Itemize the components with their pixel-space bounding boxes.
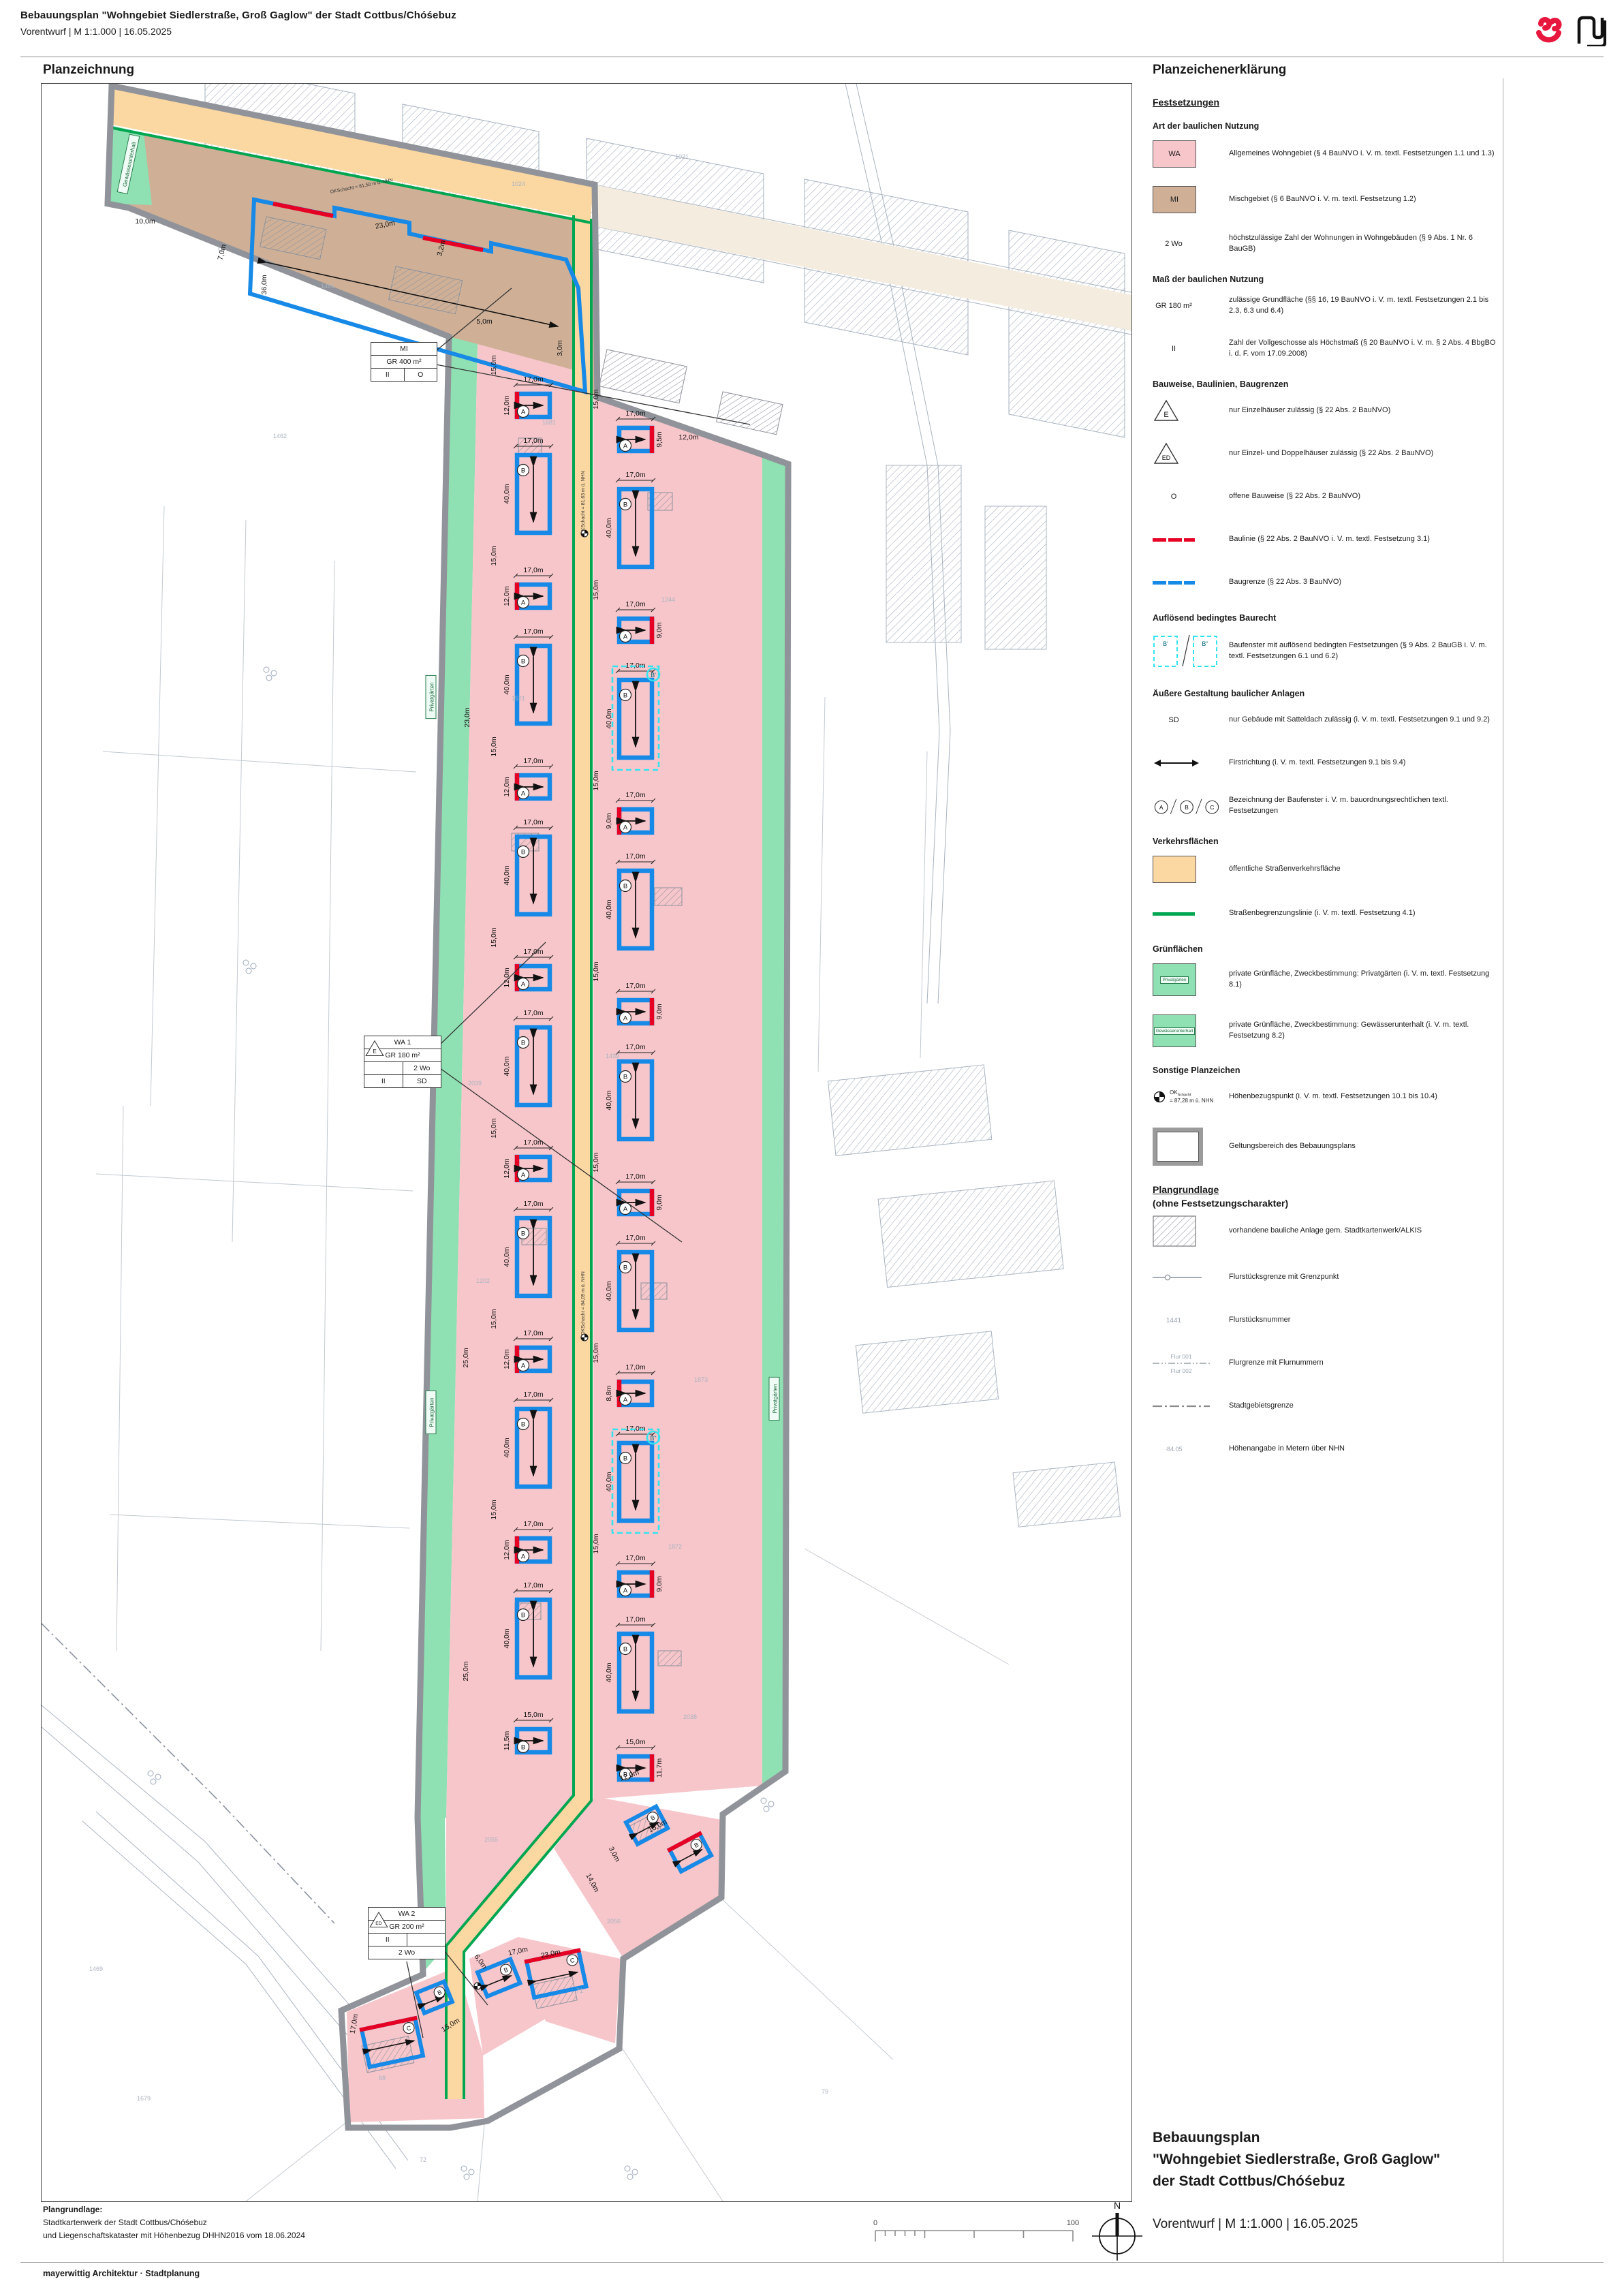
- legend-item-label: zulässige Grundfläche (§§ 16, 19 BauNVO …: [1221, 295, 1497, 317]
- svg-text:17,0m: 17,0m: [523, 1009, 543, 1017]
- svg-text:17,0m: 17,0m: [625, 982, 645, 990]
- svg-text:A: A: [521, 981, 526, 989]
- legend-item: E nur Einzelhäuser zulässig (§ 22 Abs. 2…: [1153, 399, 1497, 423]
- svg-text:15,0m: 15,0m: [490, 355, 498, 375]
- legend-item-label: öffentliche Straßenverkehrsfläche: [1221, 864, 1497, 875]
- legend-item-label: Höhenangabe in Metern über NHN: [1221, 1444, 1497, 1455]
- svg-text:1461: 1461: [321, 283, 334, 290]
- legend-item: Flurstücksgrenze mit Grenzpunkt: [1153, 1265, 1497, 1290]
- legend-item-label: Flurstücksnummer: [1221, 1315, 1497, 1326]
- svg-text:B: B: [623, 692, 627, 700]
- title-block-line2: "Wohngebiet Siedlerstraße, Groß Gaglow": [1153, 2149, 1480, 2171]
- legend-symbol: WA: [1153, 140, 1221, 168]
- svg-text:2039: 2039: [468, 1080, 482, 1087]
- legend-item-label: Geltungsbereich des Bebauungsplans: [1221, 1141, 1497, 1152]
- legend-item: B' B" Baufenster mit auflösend bedingten…: [1153, 632, 1497, 670]
- legend-item-label: Bezeichnung der Baufenster i. V. m. bauo…: [1221, 795, 1497, 817]
- svg-text:C: C: [1210, 804, 1214, 811]
- plan-drawing-svg: A 17,0m12,0m15,0m B 17,0m40,0m A 17,0m12…: [42, 84, 1131, 2201]
- title-block: Bebauungsplan "Wohngebiet Siedlerstraße,…: [1153, 2127, 1480, 2232]
- svg-text:B: B: [521, 1040, 525, 1047]
- footer-note-1: Stadtkartenwerk der Stadt Cottbus/Chóśeb…: [43, 2216, 305, 2229]
- svg-text:15,0m: 15,0m: [625, 1738, 645, 1746]
- title-block-status: Vorentwurf | M 1:1.000 | 16.05.2025: [1153, 2217, 1480, 2232]
- legend-symbol: [1153, 1128, 1221, 1166]
- svg-text:A: A: [623, 443, 628, 450]
- label-box-cell: ED: [407, 1934, 446, 1946]
- legend-hoehenbezugspunkt: OKSchacht= 87,28 m ü. NHN: [1153, 1089, 1213, 1104]
- svg-text:A: A: [623, 634, 628, 641]
- svg-text:8,8m: 8,8m: [605, 1385, 613, 1401]
- svg-text:40,0m: 40,0m: [503, 1438, 511, 1457]
- legend-item: MI Mischgebiet (§ 6 BauNVO i. V. m. text…: [1153, 186, 1497, 213]
- svg-text:B: B: [521, 1612, 525, 1619]
- sheet-header: Bebauungsplan "Wohngebiet Siedlerstraße,…: [20, 10, 456, 37]
- svg-text:17,0m: 17,0m: [523, 627, 543, 636]
- legend-item-label: nur Gebäude mit Satteldach zulässig (i. …: [1221, 715, 1497, 726]
- hoehenbezugspunkt-icon: [474, 1983, 481, 1989]
- legend-subheading: Sonstige Planzeichen: [1153, 1066, 1497, 1075]
- legend-group-subheading: (ohne Festsetzungscharakter): [1153, 1198, 1497, 1209]
- label-box-cell: GR 400 m²: [371, 356, 437, 368]
- svg-text:1872: 1872: [668, 1543, 682, 1550]
- drawing-section-title: Planzeichnung: [43, 63, 134, 78]
- legend-item: Stadtgebietsgrenze: [1153, 1394, 1497, 1418]
- legend-item-label: Baulinie (§ 22 Abs. 2 BauNVO i. V. m. te…: [1221, 534, 1497, 545]
- legend-subheading: Bauweise, Baulinien, Baugrenzen: [1153, 379, 1497, 389]
- legend-item: vorhandene bauliche Anlage gem. Stadtkar…: [1153, 1215, 1497, 1247]
- legend-bestand-hatch: [1153, 1215, 1196, 1247]
- sheet-title: Bebauungsplan "Wohngebiet Siedlerstraße,…: [20, 10, 456, 21]
- legend-symbol: Flur 001 Flur 002: [1153, 1352, 1221, 1375]
- svg-text:17,0m: 17,0m: [523, 437, 543, 445]
- legend-symbol: OKSchacht= 87,28 m ü. NHN: [1153, 1089, 1221, 1104]
- svg-text:9,5m: 9,5m: [655, 431, 663, 448]
- title-block-line1: Bebauungsplan: [1153, 2127, 1480, 2149]
- svg-text:A: A: [623, 1397, 628, 1404]
- label-box-cell: II: [364, 1075, 403, 1087]
- svg-text:40,0m: 40,0m: [503, 1056, 511, 1076]
- legend-section-title: Planzeichenerklärung: [1153, 63, 1286, 78]
- header-rule: [20, 57, 1604, 57]
- svg-text:17,0m: 17,0m: [625, 1554, 645, 1562]
- svg-text:1462: 1462: [273, 433, 287, 439]
- svg-text:17,0m: 17,0m: [625, 1363, 645, 1371]
- svg-text:B: B: [623, 1265, 627, 1272]
- svg-text:Flur 001: Flur 001: [1170, 1353, 1191, 1360]
- legend-item: Straßenbegrenzungslinie (i. V. m. textl.…: [1153, 901, 1497, 926]
- svg-text:15,0m: 15,0m: [592, 771, 600, 790]
- svg-text:B': B': [1163, 640, 1168, 647]
- svg-text:10,0m: 10,0m: [135, 217, 155, 226]
- legend-symbol: MI: [1153, 186, 1221, 213]
- svg-text:E: E: [373, 1049, 377, 1055]
- svg-text:17,0m: 17,0m: [625, 1173, 645, 1181]
- legend-baugrenze-line: [1153, 581, 1195, 585]
- plan-sheet: { "header": { "title": "Bebauungsplan \"…: [0, 0, 1624, 2296]
- legend-geltungsbereich: [1153, 1128, 1203, 1166]
- svg-text:12,0m: 12,0m: [678, 433, 698, 441]
- legend-item-label: Flurgrenze mit Flurnummern: [1221, 1358, 1497, 1369]
- svg-text:3,0m: 3,0m: [556, 340, 564, 356]
- legend-symbol: 1441: [1153, 1317, 1221, 1324]
- svg-text:9,0m: 9,0m: [655, 1004, 663, 1020]
- svg-text:15,0m: 15,0m: [490, 1500, 498, 1519]
- svg-text:B: B: [623, 1074, 627, 1081]
- label-box-cell: 2 Wo: [369, 1946, 445, 1959]
- svg-text:79: 79: [822, 2088, 828, 2095]
- svg-text:11,7m: 11,7m: [655, 1758, 663, 1778]
- legend-panel: FestsetzungenArt der baulichen NutzungWA…: [1153, 87, 1497, 1480]
- scale-bar: 0 100: [869, 2207, 1087, 2255]
- legend-symbol: [1153, 581, 1221, 585]
- legend-symbol: [1153, 1403, 1221, 1409]
- hoehenbezugspunkt-icon: [581, 530, 588, 537]
- svg-text:40,0m: 40,0m: [605, 899, 613, 919]
- wa1-label-box: WA 1GR 180 m² E2 WoIISD: [364, 1036, 441, 1088]
- footer-rule: [20, 2262, 1604, 2263]
- legend-item-label: nur Einzel- und Doppelhäuser zulässig (§…: [1221, 448, 1497, 459]
- legend-symbol: E: [1153, 399, 1221, 423]
- mi-label-box: MIGR 400 m²IIO: [371, 342, 437, 382]
- legend-symbol: ∙84.05: [1153, 1446, 1221, 1453]
- svg-text:B: B: [521, 658, 525, 666]
- svg-text:1439: 1439: [606, 1053, 619, 1059]
- svg-text:1521: 1521: [512, 695, 525, 702]
- svg-text:ED: ED: [375, 1921, 382, 1926]
- svg-text:11,5m: 11,5m: [503, 1731, 511, 1751]
- svg-text:17,0m: 17,0m: [625, 791, 645, 799]
- label-box-cell: II: [369, 1934, 407, 1946]
- svg-text:40,0m: 40,0m: [503, 865, 511, 885]
- svg-text:17,0m: 17,0m: [523, 1520, 543, 1528]
- legend-item: Firstrichtung (i. V. m. textl. Festsetzu…: [1153, 751, 1497, 775]
- legend-item: GR 180 m² zulässige Grundfläche (§§ 16, …: [1153, 294, 1497, 318]
- legend-item-label: Stadtgebietsgrenze: [1221, 1401, 1497, 1412]
- legend-item-label: nur Einzelhäuser zulässig (§ 22 Abs. 2 B…: [1221, 405, 1497, 416]
- legend-item: A B C Bezeichnung der Baufenster i. V. m…: [1153, 794, 1497, 818]
- svg-text:15,0m: 15,0m: [592, 1343, 600, 1363]
- legend-symbol: [1153, 758, 1221, 769]
- label-box-cell: E: [364, 1062, 403, 1074]
- svg-text:40,0m: 40,0m: [503, 1247, 511, 1267]
- svg-text:B: B: [521, 1744, 525, 1752]
- label-box-cell: II: [371, 369, 404, 381]
- svg-text:15,0m: 15,0m: [490, 546, 498, 565]
- legend-item-label: Baufenster mit auflösend bedingten Fests…: [1221, 640, 1497, 662]
- svg-text:A: A: [521, 600, 526, 607]
- legend-symbol: [1153, 1215, 1221, 1247]
- svg-text:1202: 1202: [476, 1277, 490, 1284]
- svg-text:25,0m: 25,0m: [462, 1661, 470, 1681]
- legend-baulinie-line: [1153, 538, 1195, 542]
- wa2-label-box: WA 2GR 200 m²II ED2 Wo: [368, 1907, 446, 1959]
- legend-symbol: Gewässerunterhalt: [1153, 1014, 1221, 1047]
- svg-text:A: A: [521, 790, 526, 798]
- svg-text:B": B": [1202, 640, 1208, 647]
- scale-start-label: 0: [873, 2219, 877, 2227]
- label-box-cell: MI: [371, 343, 437, 355]
- svg-text:B': B': [651, 672, 656, 679]
- svg-text:B: B: [623, 501, 627, 509]
- legend-item: Geltungsbereich des Bebauungsplans: [1153, 1128, 1497, 1166]
- legend-item-label: Zahl der Vollgeschosse als Höchstmaß (§ …: [1221, 338, 1497, 360]
- legend-symbol: 2 Wo: [1153, 240, 1221, 248]
- svg-text:OKSchacht = 81,63 m ü. NHN: OKSchacht = 81,63 m ü. NHN: [581, 471, 586, 535]
- legend-swatch-road: [1153, 856, 1196, 883]
- legend-strassenbegrenzung-line: [1153, 912, 1195, 916]
- svg-text:15,0m: 15,0m: [592, 1534, 600, 1553]
- svg-text:Flur 002: Flur 002: [1170, 1367, 1191, 1374]
- legend-symbol: [1153, 856, 1221, 883]
- svg-text:B: B: [1185, 804, 1189, 811]
- logo-row: [1533, 15, 1606, 50]
- svg-text:17,0m: 17,0m: [523, 1581, 543, 1589]
- svg-text:2055: 2055: [484, 1836, 498, 1843]
- svg-text:9,0m: 9,0m: [605, 813, 613, 829]
- svg-text:1021: 1021: [675, 153, 689, 160]
- svg-text:15,0m: 15,0m: [490, 1118, 498, 1138]
- svg-text:A: A: [521, 1172, 526, 1179]
- legend-item: Baulinie (§ 22 Abs. 2 BauNVO i. V. m. te…: [1153, 527, 1497, 552]
- svg-text:40,0m: 40,0m: [605, 1662, 613, 1682]
- legend-symbol: O: [1153, 493, 1221, 501]
- legend-item: Flur 001 Flur 002 Flurgrenze mit Flurnum…: [1153, 1351, 1497, 1376]
- legend-symbol: SD: [1153, 716, 1221, 724]
- legend-item: Baugrenze (§ 22 Abs. 3 BauNVO): [1153, 570, 1497, 595]
- footer-notes-title: Plangrundlage:: [43, 2203, 305, 2216]
- svg-text:17,0m: 17,0m: [523, 757, 543, 765]
- legend-group-heading: Festsetzungen: [1153, 97, 1497, 108]
- svg-text:E: E: [1164, 411, 1168, 419]
- svg-text:B: B: [623, 1646, 627, 1654]
- legend-item-label: Höhenbezugspunkt (i. V. m. textl. Festse…: [1221, 1091, 1497, 1102]
- legend-subheading: Auflösend bedingtes Baurecht: [1153, 613, 1497, 623]
- svg-text:A: A: [521, 409, 526, 416]
- svg-text:15,0m: 15,0m: [592, 389, 600, 409]
- label-box-cell: O: [404, 369, 437, 381]
- svg-text:1873: 1873: [694, 1376, 708, 1383]
- svg-text:9,0m: 9,0m: [655, 1576, 663, 1592]
- svg-text:15,0m: 15,0m: [592, 580, 600, 600]
- legend-swatch-wa: WA: [1153, 140, 1196, 168]
- svg-text:15,0m: 15,0m: [592, 1152, 600, 1172]
- svg-text:23,0m: 23,0m: [463, 707, 471, 727]
- svg-text:12,0m: 12,0m: [503, 1349, 511, 1369]
- svg-text:17,0m: 17,0m: [625, 409, 645, 418]
- svg-text:Privatgärten: Privatgärten: [429, 682, 435, 711]
- svg-text:71: 71: [576, 1987, 583, 1994]
- svg-text:40,0m: 40,0m: [605, 518, 613, 538]
- svg-text:17,0m: 17,0m: [625, 471, 645, 479]
- legend-item: II Zahl der Vollgeschosse als Höchstmaß …: [1153, 337, 1497, 361]
- studio-credit: mayerwittig Architektur · Stadtplanung: [43, 2269, 200, 2278]
- legend-item-label: Straßenbegrenzungslinie (i. V. m. textl.…: [1221, 908, 1497, 919]
- legend-item-label: Flurstücksgrenze mit Grenzpunkt: [1221, 1272, 1497, 1283]
- svg-text:17,0m: 17,0m: [625, 1234, 645, 1242]
- svg-text:17,0m: 17,0m: [625, 1043, 645, 1051]
- cottbus-city-logo-icon: [1533, 15, 1564, 50]
- legend-symbol: II: [1153, 345, 1221, 353]
- legend-symbol: GR 180 m²: [1153, 302, 1221, 310]
- svg-text:40,0m: 40,0m: [605, 1090, 613, 1110]
- svg-text:68: 68: [379, 2075, 386, 2081]
- svg-text:17,0m: 17,0m: [523, 1138, 543, 1147]
- svg-text:A: A: [623, 824, 628, 832]
- legend-subheading: Art der baulichen Nutzung: [1153, 121, 1497, 131]
- legend-baufenster-letters: A B C: [1153, 794, 1221, 818]
- svg-text:A: A: [623, 1587, 628, 1595]
- svg-text:40,0m: 40,0m: [503, 1628, 511, 1648]
- svg-text:A: A: [521, 1553, 526, 1561]
- svg-text:A: A: [521, 1363, 526, 1370]
- label-box-cell: SD: [403, 1075, 441, 1087]
- legend-item-label: offene Bauweise (§ 22 Abs. 2 BauNVO): [1221, 491, 1497, 502]
- footer-note-2: und Liegenschaftskataster mit Höhenbezug…: [43, 2229, 305, 2242]
- svg-text:12,0m: 12,0m: [503, 1540, 511, 1560]
- svg-text:1681: 1681: [542, 419, 556, 426]
- legend-item: 1441 Flurstücksnummer: [1153, 1308, 1497, 1333]
- legend-symbol: B' B": [1153, 632, 1221, 670]
- svg-text:A: A: [1159, 804, 1164, 811]
- svg-text:17,0m: 17,0m: [523, 1391, 543, 1399]
- legend-item: Privatgärten private Grünfläche, Zweckbe…: [1153, 963, 1497, 996]
- svg-text:B: B: [521, 1421, 525, 1429]
- legend-item: SD nur Gebäude mit Satteldach zulässig (…: [1153, 708, 1497, 732]
- svg-text:B: B: [623, 1455, 627, 1463]
- legend-item-label: vorhandene bauliche Anlage gem. Stadtkar…: [1221, 1226, 1497, 1237]
- svg-text:17,0m: 17,0m: [625, 1615, 645, 1624]
- legend-symbol: ED: [1153, 441, 1221, 466]
- svg-text:1679: 1679: [137, 2095, 151, 2102]
- svg-text:12,0m: 12,0m: [503, 1158, 511, 1178]
- svg-text:Privatgärten: Privatgärten: [429, 1397, 435, 1427]
- legend-symbol: A B C: [1153, 794, 1221, 818]
- svg-text:17,0m: 17,0m: [523, 566, 543, 574]
- legend-subheading: Verkehrsflächen: [1153, 837, 1497, 846]
- legend-symbol: [1153, 912, 1221, 916]
- svg-text:40,0m: 40,0m: [503, 674, 511, 694]
- svg-text:12,0m: 12,0m: [503, 586, 511, 606]
- legend-subheading: Maß der baulichen Nutzung: [1153, 275, 1497, 284]
- legend-swatch-mi: MI: [1153, 186, 1196, 213]
- legend-item-label: Baugrenze (§ 22 Abs. 3 BauNVO): [1221, 577, 1497, 588]
- legend-item: ED nur Einzel- und Doppelhäuser zulässig…: [1153, 441, 1497, 466]
- svg-text:15,0m: 15,0m: [490, 736, 498, 756]
- svg-text:5,0m: 5,0m: [476, 317, 493, 326]
- architect-logo-icon: [1576, 15, 1606, 50]
- svg-text:ED: ED: [1162, 454, 1171, 461]
- svg-text:1244: 1244: [661, 596, 675, 603]
- svg-text:15,0m: 15,0m: [592, 961, 600, 981]
- north-arrow: N: [1087, 2197, 1148, 2265]
- svg-text:1469: 1469: [89, 1966, 103, 1972]
- svg-text:B: B: [521, 1230, 525, 1238]
- legend-firstrichtung-arrow: [1153, 758, 1200, 769]
- legend-item-label: private Grünfläche, Zweckbestimmung: Pri…: [1221, 969, 1497, 991]
- north-label: N: [1114, 2200, 1121, 2211]
- title-block-line3: der Stadt Cottbus/Chóśebuz: [1153, 2171, 1480, 2192]
- svg-text:2056: 2056: [607, 1918, 621, 1925]
- svg-text:72: 72: [420, 2156, 426, 2163]
- svg-text:17,0m: 17,0m: [523, 1329, 543, 1337]
- legend-right-rule: [1503, 78, 1503, 2262]
- legend-symbol: [1153, 1273, 1221, 1282]
- legend-symbol: Privatgärten: [1153, 963, 1221, 996]
- footer-notes: Plangrundlage: Stadtkartenwerk der Stadt…: [43, 2203, 305, 2242]
- svg-text:1024: 1024: [512, 181, 525, 187]
- svg-text:12,0m: 12,0m: [503, 777, 511, 796]
- legend-subheading: Äußere Gestaltung baulicher Anlagen: [1153, 689, 1497, 698]
- svg-text:2038: 2038: [683, 1713, 697, 1720]
- legend-item-label: Firstrichtung (i. V. m. textl. Festsetzu…: [1221, 758, 1497, 769]
- svg-text:17,0m: 17,0m: [523, 1200, 543, 1208]
- svg-text:40,0m: 40,0m: [503, 484, 511, 503]
- svg-text:A: A: [623, 1206, 628, 1213]
- svg-text:17,0m: 17,0m: [523, 375, 543, 384]
- legend-item-label: private Grünfläche, Zweckbestimmung: Gew…: [1221, 1020, 1497, 1042]
- svg-text:40,0m: 40,0m: [605, 1281, 613, 1301]
- svg-text:17,0m: 17,0m: [625, 852, 645, 860]
- legend-item-label: Mischgebiet (§ 6 BauNVO i. V. m. textl. …: [1221, 194, 1497, 205]
- scale-bar-line: [875, 2231, 1073, 2241]
- label-box-cell: 2 Wo: [403, 1062, 441, 1074]
- legend-item-label: Allgemeines Wohngebiet (§ 4 BauNVO i. V.…: [1221, 149, 1497, 159]
- svg-text:B: B: [521, 467, 525, 475]
- legend-subheading: Grünflächen: [1153, 944, 1497, 954]
- legend-item: ∙84.05 Höhenangabe in Metern über NHN: [1153, 1437, 1497, 1461]
- svg-text:15,0m: 15,0m: [490, 927, 498, 947]
- legend-item: O offene Bauweise (§ 22 Abs. 2 BauNVO): [1153, 484, 1497, 509]
- legend-item: WA Allgemeines Wohngebiet (§ 4 BauNVO i.…: [1153, 140, 1497, 168]
- plan-drawing: A 17,0m12,0m15,0m B 17,0m40,0m A 17,0m12…: [41, 83, 1132, 2202]
- svg-text:15,0m: 15,0m: [523, 1711, 543, 1719]
- svg-text:17,0m: 17,0m: [523, 818, 543, 826]
- svg-text:B: B: [623, 883, 627, 890]
- hoehenbezugspunkt-icon: [581, 1334, 588, 1341]
- svg-text:9,0m: 9,0m: [655, 1194, 663, 1211]
- svg-text:12,0m: 12,0m: [503, 395, 511, 415]
- sheet-subtitle: Vorentwurf | M 1:1.000 | 16.05.2025: [20, 26, 456, 37]
- svg-text:15,0m: 15,0m: [490, 1309, 498, 1329]
- legend-baufenster-symbol: B' B": [1153, 632, 1221, 670]
- svg-text:9,0m: 9,0m: [655, 622, 663, 638]
- svg-text:36,0m: 36,0m: [260, 275, 268, 294]
- svg-text:A: A: [623, 1015, 628, 1023]
- svg-text:B: B: [521, 849, 525, 856]
- legend-item: öffentliche Straßenverkehrsfläche: [1153, 856, 1497, 883]
- scale-end-label: 100: [1067, 2219, 1079, 2227]
- svg-text:B": B": [650, 1435, 656, 1442]
- svg-text:Privatgärten: Privatgärten: [772, 1384, 779, 1413]
- svg-text:OKSchacht = 84,09 m ü. NHN: OKSchacht = 84,09 m ü. NHN: [581, 1271, 586, 1335]
- legend-item-label: höchstzulässige Zahl der Wohnungen in Wo…: [1221, 233, 1497, 255]
- legend-item: 2 Wo höchstzulässige Zahl der Wohnungen …: [1153, 232, 1497, 256]
- svg-text:17,0m: 17,0m: [625, 600, 645, 608]
- legend-item: OKSchacht= 87,28 m ü. NHN Höhenbezugspun…: [1153, 1085, 1497, 1109]
- legend-symbol: [1153, 538, 1221, 542]
- legend-item: Gewässerunterhalt private Grünfläche, Zw…: [1153, 1014, 1497, 1047]
- svg-text:25,0m: 25,0m: [462, 1348, 470, 1367]
- legend-group-heading: Plangrundlage: [1153, 1184, 1497, 1195]
